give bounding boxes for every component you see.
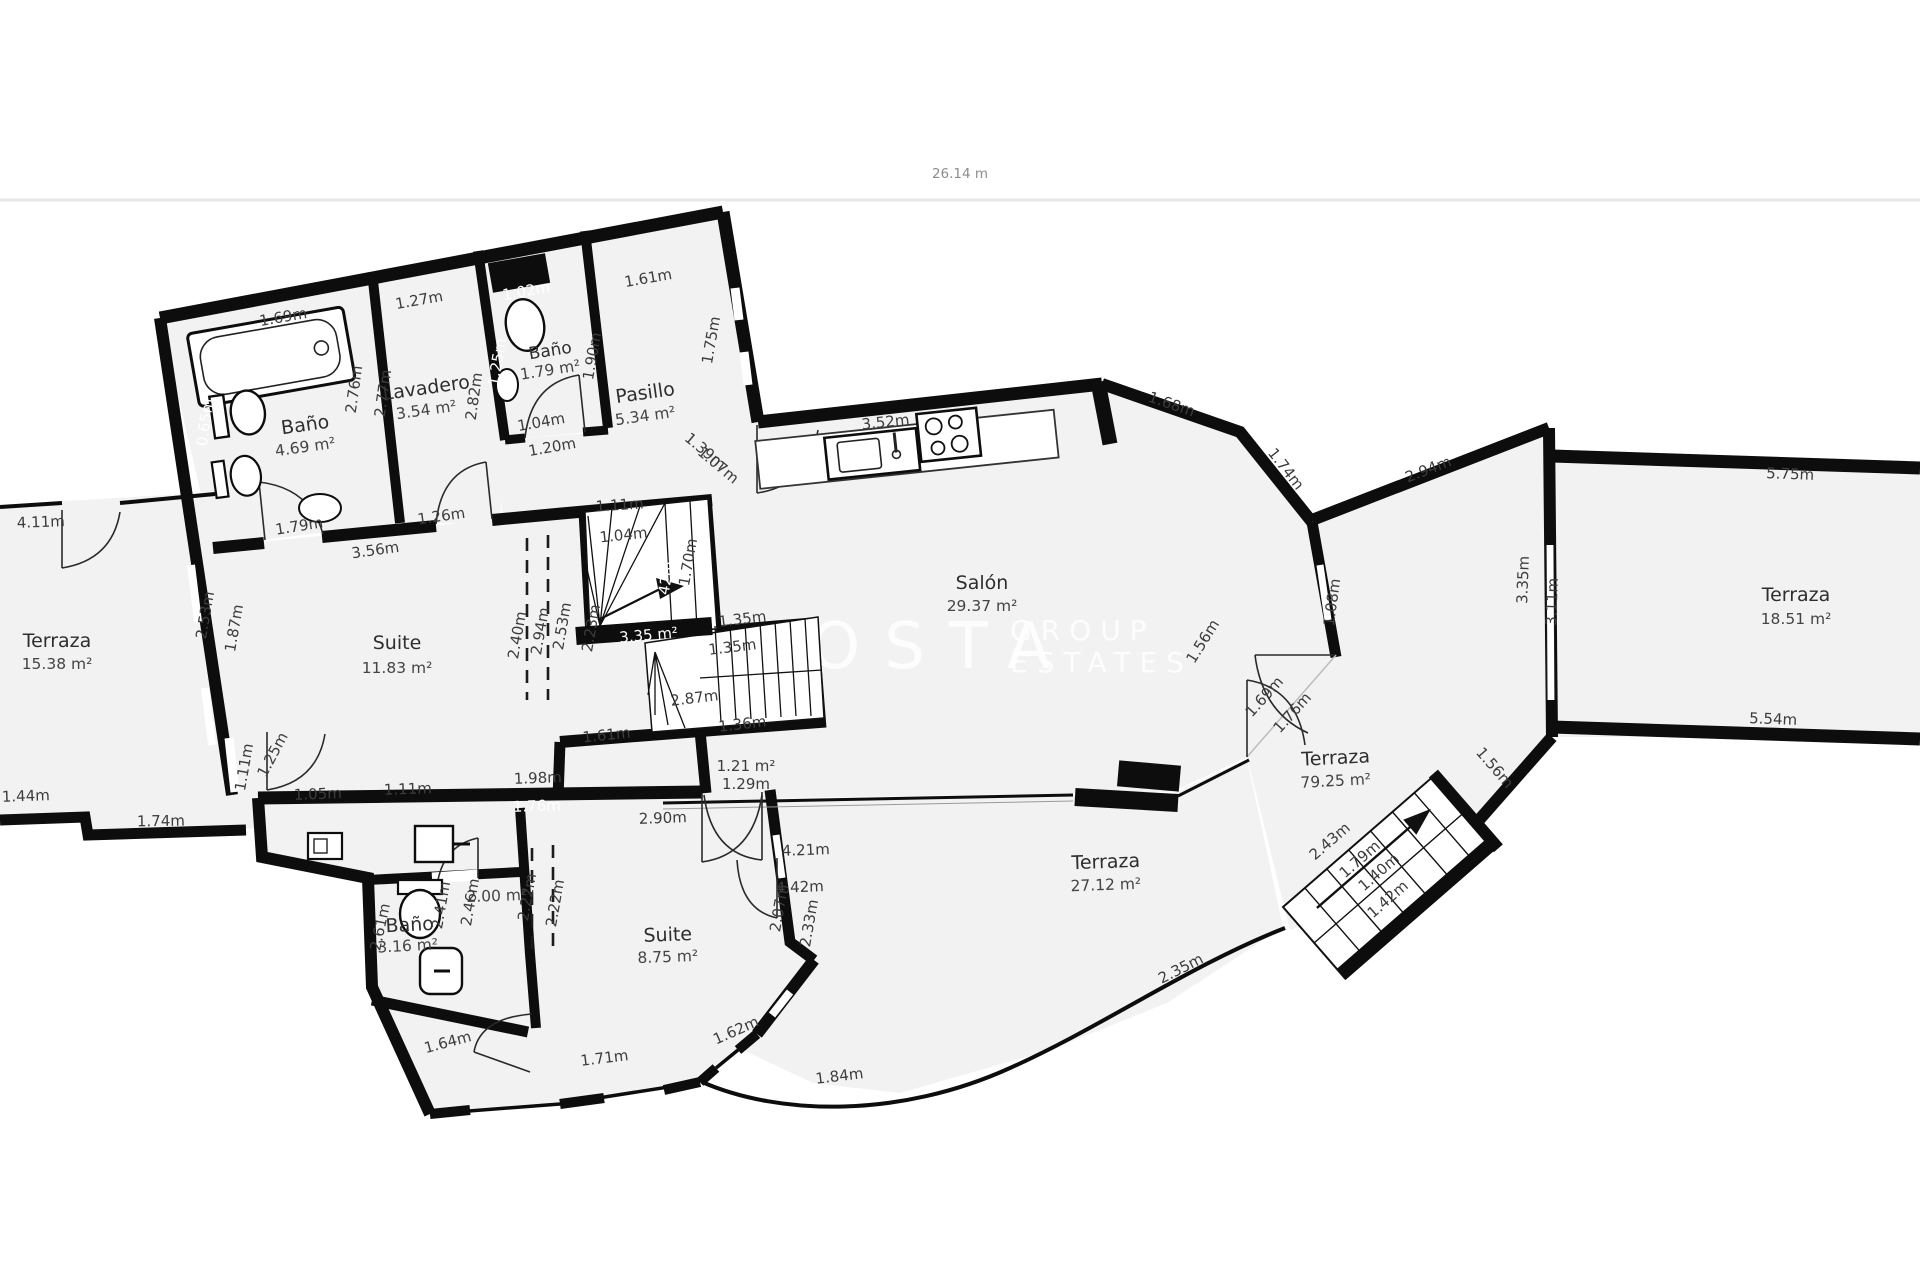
dim-label: 1.76m (513, 796, 562, 816)
room-area: 27.12 m² (1070, 875, 1141, 895)
dim-label: 3.35m (1513, 556, 1533, 605)
watermark-sub2: ESTATES (1010, 646, 1193, 679)
room-name: Terraza (1070, 850, 1140, 874)
room-name: Terraza (22, 630, 92, 652)
dim-label: 5.54m (1749, 709, 1798, 729)
dim-label: 1.29m (722, 775, 770, 793)
stair-flight-upper (585, 499, 717, 634)
floor-terraza-right (1550, 455, 1920, 737)
room-area: 29.37 m² (947, 597, 1018, 615)
room-name: Terraza (1761, 584, 1831, 606)
dim-label: 4.11m (17, 512, 66, 532)
wall-pillar (1117, 760, 1181, 791)
room-name: Salón (956, 572, 1009, 594)
room-area: 11.83 m² (362, 659, 433, 677)
room-name: Suite (373, 632, 422, 654)
floorplan-page: 26.14 m COSTA GROUP ESTATES (0, 0, 1920, 1280)
window (735, 288, 739, 320)
stove-icon (916, 408, 981, 462)
floor-plan-svg: 26.14 m COSTA GROUP ESTATES (0, 0, 1920, 1280)
dim-label: 4.21m (782, 840, 831, 860)
kitchen-sink-icon (824, 428, 920, 479)
dim-label: 1.44m (2, 786, 51, 806)
dim-label: 3.11m (1542, 578, 1562, 627)
watermark-sub1: GROUP (1010, 614, 1156, 647)
room-area: 15.38 m² (22, 655, 93, 673)
window (744, 352, 748, 385)
dim-label: 2.90m (639, 808, 688, 828)
room-area: 79.25 m² (1300, 770, 1371, 792)
room-name: Terraza (1300, 745, 1371, 771)
overall-width-label: 26.14 m (932, 166, 988, 182)
dim-label: 1.74m (137, 812, 185, 831)
dim-label: 1.21 m² (717, 757, 776, 775)
room-name: Suite (643, 923, 692, 947)
utility-sink-icon (415, 826, 453, 862)
dim-label: 5.75m (1766, 464, 1815, 484)
room-area: 18.51 m² (1761, 610, 1832, 628)
dim-label: 1.11m (595, 494, 644, 515)
room-name: Baño (385, 913, 434, 938)
wall (1075, 797, 1178, 803)
washer-icon (308, 833, 342, 859)
dim-label: 1.05m (294, 784, 343, 804)
dim-label: 1.98m (514, 768, 563, 788)
dim-label: 1.11m (384, 779, 433, 799)
room-area: 8.75 m² (637, 947, 698, 967)
